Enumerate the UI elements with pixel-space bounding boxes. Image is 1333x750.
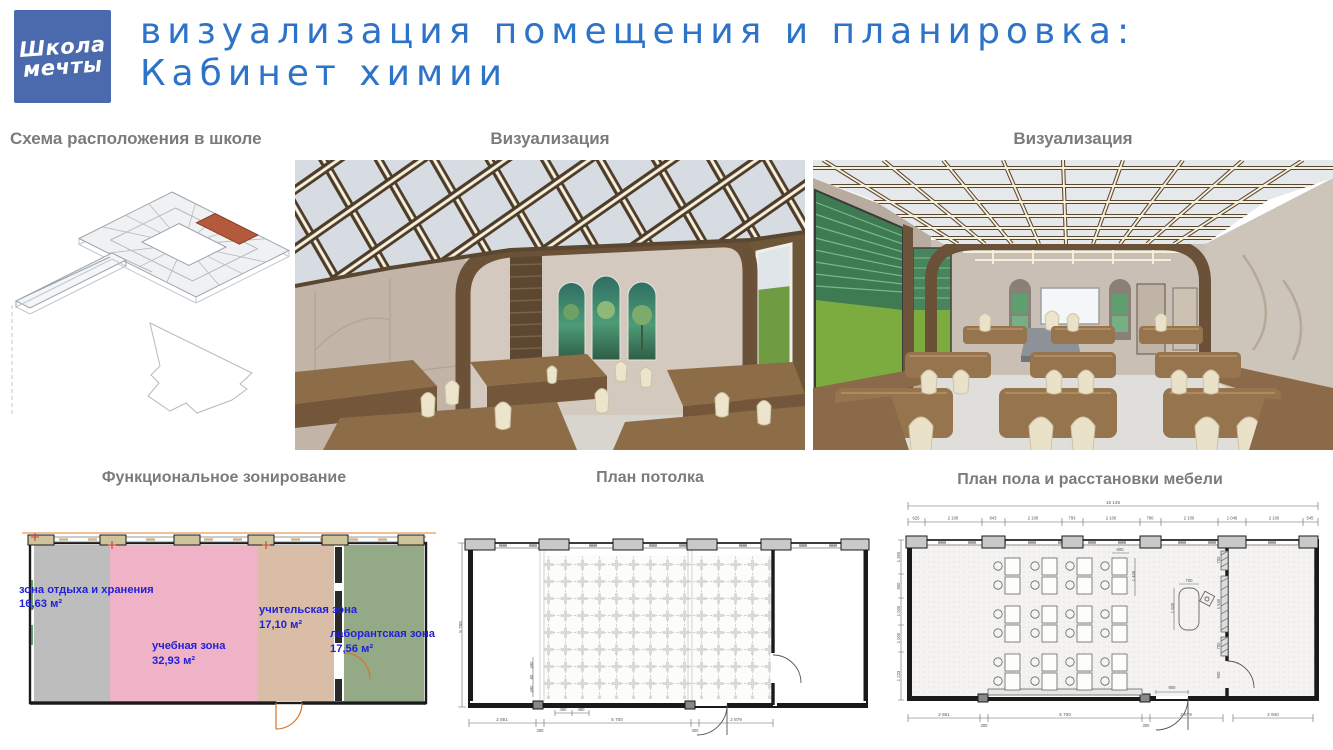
dim: 2 651 <box>938 712 950 717</box>
page-title: визуализация помещения и планировка: Каб… <box>140 11 1135 95</box>
dim: 2 100 <box>1184 516 1195 521</box>
zone-teacher-area: 17,10 м² <box>259 619 302 631</box>
title-line2: Кабинет химии <box>140 53 1135 95</box>
dim: 2 679 <box>1180 712 1192 717</box>
title-line1: визуализация помещения и планировка: <box>140 11 1135 53</box>
dim: 1 500 <box>1170 602 1175 613</box>
zone-rest-area: 16,63 м² <box>19 598 62 610</box>
dim: 700 <box>1216 642 1221 650</box>
dim: 300 <box>1143 723 1151 728</box>
floor-bottom-dimensions: 2 651 300 5 700 300 2 679 2 940 <box>908 712 1313 728</box>
dim: 625 <box>913 516 921 521</box>
dim: 900 <box>896 582 901 590</box>
dim: 2 100 <box>1269 516 1280 521</box>
dim: 900 <box>1216 671 1221 679</box>
dim: 300 <box>537 728 545 733</box>
dim: 600 <box>1117 547 1125 552</box>
school-location-scheme <box>0 160 290 450</box>
zone-study-area: 32,93 м² <box>152 655 195 667</box>
dim: 1 046 <box>1227 516 1238 521</box>
dim: 490 <box>578 707 586 712</box>
scheme-lower-building <box>148 323 252 413</box>
dim: 1 540 <box>1216 598 1221 609</box>
floor-left-dimensions: 1 350 900 1 000 1 000 1 223 <box>896 540 904 700</box>
logo-line2: мечты <box>22 54 103 79</box>
dim: 900 <box>1169 685 1177 690</box>
zone-lab-area: 17,56 м² <box>330 643 373 655</box>
render-classroom-front <box>813 160 1333 450</box>
floor-plan: 15 145 625 2 100 843 2 100 793 2 100 780… <box>893 496 1333 748</box>
school-logo: Школа мечты <box>14 10 111 103</box>
dim: 2 651 <box>496 717 508 722</box>
arched-murals <box>558 276 656 360</box>
viz1-title: Визуализация <box>295 129 805 149</box>
dim: 80 <box>529 674 534 679</box>
door-arc-lab <box>773 655 801 683</box>
dim: 2 879 <box>730 717 742 722</box>
dim: 1 223 <box>896 670 901 681</box>
dim: 1 000 <box>896 632 901 643</box>
dim: 793 <box>1069 516 1077 521</box>
zone-lab-name: лаборантская зона <box>330 628 436 640</box>
slide: Школа мечты визуализация помещения и пла… <box>0 0 1333 750</box>
dim: 5 788 <box>458 621 463 633</box>
viz2-title: Визуализация <box>813 129 1333 149</box>
ceiling-coffer-grid <box>543 555 771 699</box>
dim: 490 <box>529 661 534 669</box>
zone-study-name: учебная зона <box>152 640 226 652</box>
dim: 300 <box>981 723 989 728</box>
ceiling-title: План потолка <box>440 469 860 487</box>
zone-teacher-name: учительская зона <box>259 604 358 616</box>
zoning-title: Функциональное зонирование <box>14 469 434 487</box>
dim: 2 100 <box>1028 516 1039 521</box>
door-arc-bottom <box>697 705 727 735</box>
dim: 545 <box>1307 516 1315 521</box>
ceiling-top-windows <box>465 539 869 550</box>
dim: 1 000 <box>896 605 901 616</box>
dim: 490 <box>529 685 534 693</box>
floor-top-dimensions: 15 145 625 2 100 843 2 100 793 2 100 780… <box>908 500 1318 526</box>
dim: 2 940 <box>1267 712 1279 717</box>
dim: 780 <box>1147 516 1155 521</box>
dim: 2 100 <box>1106 516 1117 521</box>
dim: 700 <box>1216 556 1221 564</box>
zoning-plan: зона отдыха и хранения 16,63 м² учебная … <box>14 525 444 740</box>
dim-overall: 15 145 <box>1106 500 1120 505</box>
scheme-left-wing <box>16 253 126 314</box>
wood-slat-shelf <box>510 255 542 367</box>
dim: 1 400 <box>1131 570 1136 581</box>
dim: 843 <box>990 516 998 521</box>
dim: 5 700 <box>1059 712 1071 717</box>
dim: 700 <box>1186 578 1194 583</box>
door-arc-bottom <box>276 703 302 729</box>
zone-lab <box>344 545 424 701</box>
floor-title: План пола и расстановки мебели <box>880 471 1300 489</box>
zone-rest-name: зона отдыха и хранения <box>19 584 154 596</box>
zone-rest-storage <box>34 545 110 701</box>
dim: 1 350 <box>896 551 901 562</box>
scheme-title: Схема расположения в школе <box>10 129 262 149</box>
partition-shelving <box>1221 551 1228 656</box>
dim: 5 700 <box>611 717 623 722</box>
dim: 2 100 <box>948 516 959 521</box>
render-classroom-murals <box>295 160 805 450</box>
mural-left <box>558 283 585 361</box>
zone-study <box>110 545 258 701</box>
school-wireframe <box>12 192 289 415</box>
dim: 490 <box>560 707 568 712</box>
dim: 300 <box>692 728 700 733</box>
ceiling-plan: 2 651 300 5 700 300 2 879 5 788 490 490 … <box>455 505 880 750</box>
